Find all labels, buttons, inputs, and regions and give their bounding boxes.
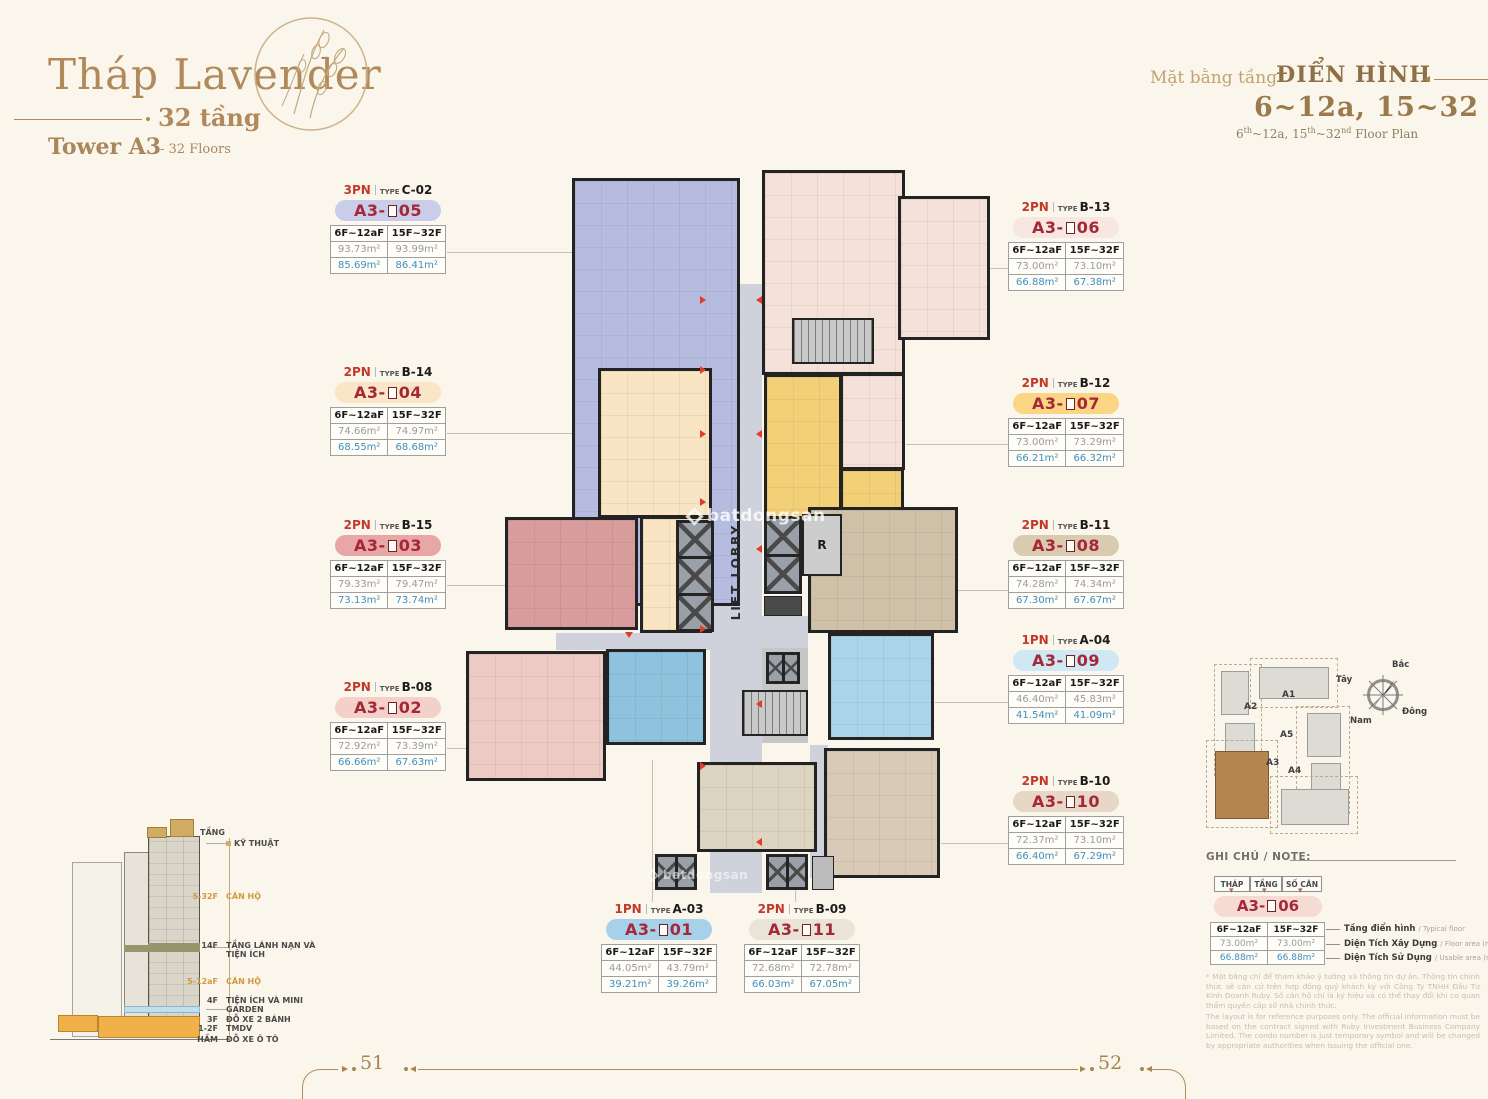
type-word: TYPE — [380, 370, 400, 378]
usable-area-row: 67.30m²67.67m² — [1009, 593, 1124, 609]
site-tower-a1 — [1250, 658, 1338, 708]
unit-area-table: 6F~12aF15F~32F 74.66m²74.97m² 68.55m²68.… — [330, 407, 446, 456]
lavender-logo-icon — [252, 14, 370, 134]
floor-placeholder-box — [802, 924, 811, 936]
usable-area-row: 66.66m²67.63m² — [331, 755, 446, 771]
connector-a302 — [447, 748, 467, 749]
usable-area-row: 39.21m²39.26m² — [602, 977, 717, 993]
col-high-floors: 15F~32F — [1066, 419, 1124, 435]
divider — [375, 682, 376, 692]
unit-card-header: 2PNTYPEB-15 — [330, 518, 446, 532]
legend-arrow-icon: ▾ — [1262, 886, 1267, 896]
type-word: TYPE — [1058, 638, 1078, 646]
site-tower-a4 — [1270, 776, 1358, 834]
tower-floors-vi: 32 tầng — [158, 103, 261, 132]
unit-area-table: 6F~12aF15F~32F 72.92m²73.39m² 66.66m²67.… — [330, 722, 446, 771]
disclaimer-vi: * Mặt bằng chỉ để tham khảo ý tưởng và t… — [1206, 972, 1480, 1010]
unit-area-table: 6F~12aF15F~32F 73.00m²73.29m² 66.21m²66.… — [1008, 418, 1124, 467]
unit-number-badge: A3-02 — [335, 697, 441, 718]
unit-area-table: 6F~12aF15F~32F 44.05m²43.79m² 39.21m²39.… — [601, 944, 717, 993]
section-diagram-row: 14F TẦNG LÁNH NẠN VÀ TIỆN ÍCH — [120, 941, 334, 959]
site-label-a4: A4 — [1288, 766, 1301, 776]
unit-number: 04 — [399, 383, 422, 402]
bedroom-count-label: 2PN — [1022, 200, 1049, 214]
floor-function: TMDV — [226, 1024, 322, 1033]
col-high-floors: 15F~32F — [1066, 561, 1124, 577]
floor-placeholder-box — [1267, 900, 1276, 912]
divider — [375, 367, 376, 377]
floor-placeholder-box — [1066, 398, 1075, 410]
unit-prefix: A3- — [768, 920, 800, 939]
note-underline — [1290, 860, 1456, 861]
type-word: TYPE — [1058, 381, 1078, 389]
podium-annex — [58, 1015, 98, 1032]
unit-card-header: 2PNTYPEB-10 — [1008, 774, 1124, 788]
col-low-floors: 6F~12aF — [1009, 817, 1066, 833]
section-diagram-row: 3F ĐỖ XE 2 BÁNH — [120, 1015, 334, 1024]
floor-function: ĐỖ XE Ô TÔ — [226, 1035, 322, 1044]
col-low-floors: 6F~12aF — [1009, 561, 1066, 577]
door-arrow — [700, 296, 706, 304]
legend-arrow-icon: ▾ — [1229, 886, 1234, 896]
compass-south: Nam — [1350, 716, 1372, 726]
type-word: TYPE — [794, 907, 814, 915]
legend-area-table: 6F~12aF15F~32F 73.00m²73.00m² 66.88m²66.… — [1210, 922, 1325, 965]
unit-card-a311: 2PNTYPEB-09 A3-11 6F~12aF15F~32F 72.68m²… — [744, 902, 860, 993]
bedroom-count-label: 2PN — [344, 518, 371, 532]
legend-row-label: Diện Tích Sử Dụng / Usable area (m²) — [1344, 953, 1488, 963]
elevator-bank-left — [676, 520, 714, 632]
unit-number-badge: A3-06 — [1013, 217, 1119, 238]
unit-number: 06 — [1077, 218, 1100, 237]
unit-number: 08 — [1077, 536, 1100, 555]
divider — [1053, 520, 1054, 530]
unit-number-badge: A3-08 — [1013, 535, 1119, 556]
bedroom-count-label: 2PN — [1022, 774, 1049, 788]
corridor-left-arm — [556, 633, 710, 650]
utility-shaft — [764, 596, 802, 616]
bedroom-count-label: 3PN — [344, 183, 371, 197]
tang-label: TẦNG — [200, 828, 225, 837]
legend-dash — [1326, 958, 1340, 959]
door-arrow — [700, 366, 706, 374]
unit-card-header: 2PNTYPEB-11 — [1008, 518, 1124, 532]
unit-prefix: A3- — [354, 201, 386, 220]
legend-row-label: Tầng điển hình / Typical floor — [1344, 924, 1465, 934]
floor-range: 5-32F — [120, 892, 226, 901]
floor-area-row: 44.05m²43.79m² — [602, 961, 717, 977]
refuse-room-label: R — [817, 538, 826, 552]
unit-number-badge: A3-10 — [1013, 791, 1119, 812]
unit-prefix: A3- — [354, 383, 386, 402]
col-low-floors: 6F~12aF — [745, 945, 802, 961]
door-arrow — [625, 632, 633, 638]
usable-area-row: 73.13m²73.74m² — [331, 593, 446, 609]
door-arrow — [756, 430, 762, 438]
unit-number: 03 — [399, 536, 422, 555]
bedroom-count-label: 2PN — [344, 680, 371, 694]
divider — [646, 904, 647, 914]
floor-range: 3F — [120, 1015, 226, 1024]
unit-number: 10 — [1077, 792, 1100, 811]
unit-prefix: A3- — [625, 920, 657, 939]
floor-placeholder-box — [1066, 540, 1075, 552]
floor-placeholder-box — [388, 387, 397, 399]
unit-prefix: A3- — [354, 698, 386, 717]
type-word: TYPE — [1058, 779, 1078, 787]
table-header-row: 6F~12aF15F~32F — [1009, 817, 1124, 833]
tower-cap-2 — [170, 819, 194, 837]
header-arrow-line — [1434, 79, 1488, 80]
floor-placeholder-box — [659, 924, 668, 936]
table-header-row: 6F~12aF15F~32F — [1009, 419, 1124, 435]
footer-dot — [1090, 1067, 1094, 1071]
unit-area-table: 6F~12aF15F~32F 72.37m²73.10m² 66.40m²67.… — [1008, 816, 1124, 865]
col-high-floors: 15F~32F — [388, 408, 446, 424]
col-high-floors: 15F~32F — [388, 561, 446, 577]
footer-curve-right — [1150, 1069, 1186, 1099]
type-word: TYPE — [1058, 205, 1078, 213]
connector-a306 — [988, 268, 1010, 269]
header-arrow-icon — [1424, 76, 1430, 82]
usable-area-row: 85.69m²86.41m² — [331, 258, 446, 274]
connector-a305 — [447, 252, 573, 253]
type-code: B-10 — [1080, 774, 1111, 788]
compass-east: Đông — [1402, 707, 1427, 717]
door-arrow — [756, 296, 762, 304]
section-diagram-row: 4F TIỆN ÍCH VÀ MINI GARDEN — [120, 996, 334, 1014]
corridor-right-arm — [762, 616, 808, 648]
unit-prefix: A3- — [1032, 651, 1064, 670]
type-code: B-11 — [1080, 518, 1111, 532]
disclaimer-en: The layout is for reference purposes onl… — [1206, 1012, 1480, 1050]
footer-line — [418, 1069, 1078, 1070]
unit-number: 01 — [670, 920, 693, 939]
unit-area-table: 6F~12aF15F~32F 79.33m²79.47m² 73.13m²73.… — [330, 560, 446, 609]
table-header-row: 6F~12aF15F~32F — [331, 226, 446, 242]
legend-dash — [1326, 929, 1340, 930]
type-code: C-02 — [402, 183, 433, 197]
site-label-a1: A1 — [1282, 690, 1295, 700]
door-arrow — [700, 430, 706, 438]
usable-area-row: 68.55m²68.68m² — [331, 440, 446, 456]
unit-plan-a03 — [606, 649, 706, 745]
unit-number-badge: A3-09 — [1013, 650, 1119, 671]
unit-number-badge: A3-05 — [335, 200, 441, 221]
type-word: TYPE — [380, 188, 400, 196]
connector-a309 — [935, 702, 1010, 703]
unit-card-a307: 2PNTYPEB-12 A3-07 6F~12aF15F~32F 73.00m²… — [1008, 376, 1124, 467]
footer-arrow — [410, 1066, 416, 1072]
unit-number: 07 — [1077, 394, 1100, 413]
unit-plan-b13-leg — [840, 373, 905, 470]
brochure-page: Tháp Lavender 32 tầng Tower A3 - 32 Floo… — [0, 0, 1488, 1099]
floor-range: 14F — [120, 941, 226, 950]
col-low-floors: 6F~12aF — [331, 723, 388, 739]
floor-placeholder-box — [388, 205, 397, 217]
page-number-right: 52 — [1098, 1052, 1122, 1074]
door-arrow — [756, 545, 762, 553]
type-word: TYPE — [651, 907, 671, 915]
door-arrow — [700, 762, 706, 770]
connector-a303 — [447, 585, 506, 586]
unit-plan-b08 — [466, 651, 606, 781]
divider — [1053, 202, 1054, 212]
bedroom-count-label: 2PN — [1022, 518, 1049, 532]
unit-card-a301: 1PNTYPEA-03 A3-01 6F~12aF15F~32F 44.05m²… — [601, 902, 717, 993]
floor-area-row: 74.28m²74.34m² — [1009, 577, 1124, 593]
unit-prefix: A3- — [354, 536, 386, 555]
unit-card-a302: 2PNTYPEB-08 A3-02 6F~12aF15F~32F 72.92m²… — [330, 680, 446, 771]
unit-number-badge: A3-07 — [1013, 393, 1119, 414]
note-title: GHI CHÚ / NOTE: — [1206, 851, 1311, 863]
floor-function: CĂN HỘ — [226, 977, 322, 986]
connector-a310 — [941, 843, 1010, 844]
usable-area-row: 66.03m²67.05m² — [745, 977, 860, 993]
unit-card-a305: 3PNTYPEC-02 A3-05 6F~12aF15F~32F 93.73m²… — [330, 183, 446, 274]
usable-area-row: 41.54m²41.09m² — [1009, 708, 1124, 724]
floor-placeholder-box — [388, 540, 397, 552]
header-rule — [14, 119, 142, 120]
unit-plan-a04 — [828, 633, 934, 740]
tower-floors-en: - 32 Floors — [160, 142, 231, 157]
floor-area-row: 72.92m²73.39m² — [331, 739, 446, 755]
footer-arrow — [342, 1066, 348, 1072]
col-low-floors: 6F~12aF — [1009, 419, 1066, 435]
col-high-floors: 15F~32F — [1066, 676, 1124, 692]
site-label-a5: A5 — [1280, 730, 1293, 740]
legend-unit-badge: A3-06 — [1214, 896, 1322, 917]
unit-card-a308: 2PNTYPEB-11 A3-08 6F~12aF15F~32F 74.28m²… — [1008, 518, 1124, 609]
usable-area-row: 66.21m²66.32m² — [1009, 451, 1124, 467]
divider — [1053, 776, 1054, 786]
type-code: B-15 — [402, 518, 433, 532]
floor-function: KỸ THUẬT — [226, 839, 322, 848]
floor-area-row: 72.37m²73.10m² — [1009, 833, 1124, 849]
connector-a308 — [957, 590, 1010, 591]
floor-placeholder-box — [1066, 796, 1075, 808]
unit-number: 05 — [399, 201, 422, 220]
unit-card-header: 1PNTYPEA-03 — [601, 902, 717, 916]
floor-range: 4F — [120, 996, 226, 1005]
unit-card-header: 2PNTYPEB-08 — [330, 680, 446, 694]
plan-subtitle-en: 6th~12a, 15th~32nd Floor Plan — [1236, 126, 1418, 141]
unit-card-header: 1PNTYPEA-04 — [1008, 633, 1124, 647]
section-diagram-row: 5-32F CĂN HỘ — [120, 892, 334, 901]
door-arrow — [756, 700, 762, 708]
col-low-floors: 6F~12aF — [1009, 676, 1066, 692]
divider — [1053, 635, 1054, 645]
unit-number: 02 — [399, 698, 422, 717]
type-code: B-08 — [402, 680, 433, 694]
type-code: B-13 — [1080, 200, 1111, 214]
unit-number-badge: A3-01 — [606, 919, 712, 940]
table-header-row: 6F~12aF15F~32F — [1009, 561, 1124, 577]
unit-number: 11 — [813, 920, 836, 939]
col-high-floors: 15F~32F — [659, 945, 717, 961]
bedroom-count-label: 1PN — [615, 902, 642, 916]
unit-number: 09 — [1077, 651, 1100, 670]
table-header-row: 6F~12aF15F~32F — [745, 945, 860, 961]
unit-card-header: 3PNTYPEC-02 — [330, 183, 446, 197]
unit-card-a303: 2PNTYPEB-15 A3-03 6F~12aF15F~32F 79.33m²… — [330, 518, 446, 609]
page-number-left: 51 — [360, 1052, 384, 1074]
col-low-floors: 6F~12aF — [331, 226, 388, 242]
unit-area-table: 6F~12aF15F~32F 93.73m²93.99m² 85.69m²86.… — [330, 225, 446, 274]
door-arrow — [756, 838, 762, 846]
type-code: B-09 — [816, 902, 847, 916]
compass-north: Bắc — [1392, 660, 1409, 670]
unit-card-header: 2PNTYPEB-09 — [744, 902, 860, 916]
table-header-row: 6F~12aF15F~32F — [602, 945, 717, 961]
unit-plan-b13-wing — [898, 196, 990, 340]
unit-card-header: 2PNTYPEB-12 — [1008, 376, 1124, 390]
table-header-row: 6F~12aF15F~32F — [331, 408, 446, 424]
unit-plan-b15 — [505, 517, 638, 630]
floor-function: TIỆN ÍCH VÀ MINI GARDEN — [226, 996, 322, 1014]
floor-placeholder-box — [1066, 222, 1075, 234]
unit-number-badge: A3-11 — [749, 919, 855, 940]
unit-card-a306: 2PNTYPEB-13 A3-06 6F~12aF15F~32F 73.00m²… — [1008, 200, 1124, 291]
floor-range: 1-2F — [120, 1024, 226, 1033]
section-diagram-row: HẦM ĐỖ XE Ô TÔ — [120, 1035, 334, 1044]
type-word: TYPE — [380, 685, 400, 693]
legend-arrow-icon: ▾ — [1298, 886, 1303, 896]
unit-area-table: 6F~12aF15F~32F 46.40m²45.83m² 41.54m²41.… — [1008, 675, 1124, 724]
legend-dash — [1326, 944, 1340, 945]
floor-function: ĐỖ XE 2 BÁNH — [226, 1015, 322, 1024]
unit-prefix: A3- — [1032, 536, 1064, 555]
divider — [375, 520, 376, 530]
footer-arrow — [1080, 1066, 1086, 1072]
floor-area-row: 79.33m²79.47m² — [331, 577, 446, 593]
unit-plan-b14 — [598, 368, 712, 518]
watermark-logo-icon — [646, 869, 659, 882]
tower-back — [72, 862, 122, 1037]
floor-range: HẦM — [120, 1035, 226, 1044]
shaft-small — [766, 652, 800, 684]
unit-prefix: A3- — [1032, 792, 1064, 811]
site-tower-a3 — [1206, 740, 1278, 828]
floor-area-row: 72.68m²72.78m² — [745, 961, 860, 977]
site-label-a3: A3 — [1266, 758, 1279, 768]
section-diagram-row: 5-12aF CĂN HỘ — [120, 977, 334, 986]
floor-area-row: 74.66m²74.97m² — [331, 424, 446, 440]
door-arrow — [700, 498, 706, 506]
col-low-floors: 6F~12aF — [331, 408, 388, 424]
bedroom-count-label: 2PN — [1022, 376, 1049, 390]
col-high-floors: 15F~32F — [1066, 243, 1124, 259]
floor-range-title: 6~12a, 15~32 — [1254, 92, 1479, 123]
floor-placeholder-box — [1066, 655, 1075, 667]
header-rule-dot — [146, 117, 150, 121]
floor-area-row: 46.40m²45.83m² — [1009, 692, 1124, 708]
col-high-floors: 15F~32F — [802, 945, 860, 961]
type-code: A-04 — [1079, 633, 1110, 647]
type-code: B-12 — [1080, 376, 1111, 390]
floor-placeholder-box — [388, 702, 397, 714]
tower-cap-1 — [147, 827, 167, 838]
compass-west: Tây — [1336, 675, 1352, 685]
footer-dot — [1140, 1067, 1144, 1071]
col-high-floors: 15F~32F — [1066, 817, 1124, 833]
unit-prefix: A3- — [1032, 218, 1064, 237]
plan-title-vi: ĐIỂN HÌNH — [1276, 62, 1431, 88]
elevator-bottom-right — [766, 854, 808, 890]
unit-prefix: A3- — [1032, 394, 1064, 413]
unit-number-badge: A3-04 — [335, 382, 441, 403]
table-header-row: 6F~12aF15F~32F — [331, 561, 446, 577]
bedroom-count-label: 1PN — [1022, 633, 1049, 647]
divider — [789, 904, 790, 914]
connector-a307 — [906, 444, 1010, 445]
col-low-floors: 6F~12aF — [602, 945, 659, 961]
footer-dot — [352, 1067, 356, 1071]
tower-name: Tower A3 — [48, 134, 161, 160]
divider — [1053, 378, 1054, 388]
col-high-floors: 15F~32F — [388, 723, 446, 739]
section-diagram-row: KỸ THUẬT — [120, 839, 334, 848]
type-code: A-03 — [672, 902, 703, 916]
footer-curve-left — [302, 1069, 338, 1099]
col-low-floors: 6F~12aF — [1009, 243, 1066, 259]
unit-card-header: 2PNTYPEB-14 — [330, 365, 446, 379]
usable-area-row: 66.40m²67.29m² — [1009, 849, 1124, 865]
staircase-mid — [742, 690, 808, 736]
col-high-floors: 15F~32F — [388, 226, 446, 242]
type-code: B-14 — [402, 365, 433, 379]
table-header-row: 6F~12aF15F~32F — [331, 723, 446, 739]
bedroom-count-label: 2PN — [758, 902, 785, 916]
bedroom-count-label: 2PN — [344, 365, 371, 379]
unit-area-table: 6F~12aF15F~32F 73.00m²73.10m² 66.88m²67.… — [1008, 242, 1124, 291]
unit-card-header: 2PNTYPEB-13 — [1008, 200, 1124, 214]
watermark: batdongsan — [688, 506, 826, 526]
unit-number-badge: A3-03 — [335, 535, 441, 556]
plan-subtitle-vi: Mặt bằng tầng — [1150, 68, 1277, 88]
elevator-bank-right — [764, 516, 802, 594]
staircase-top — [792, 318, 874, 364]
unit-plan-b10 — [824, 748, 940, 878]
divider — [375, 185, 376, 195]
utility-bottom — [812, 856, 834, 890]
legend-row-label: Diện Tích Xây Dựng / Floor area (m²) — [1344, 939, 1488, 949]
unit-card-a304: 2PNTYPEB-14 A3-04 6F~12aF15F~32F 74.66m²… — [330, 365, 446, 456]
unit-card-a309: 1PNTYPEA-04 A3-09 6F~12aF15F~32F 46.40m²… — [1008, 633, 1124, 724]
type-word: TYPE — [380, 523, 400, 531]
floor-area-row: 73.00m²73.29m² — [1009, 435, 1124, 451]
floor-area-row: 93.73m²93.99m² — [331, 242, 446, 258]
footer-dot — [404, 1067, 408, 1071]
site-label-a2: A2 — [1244, 702, 1257, 712]
col-low-floors: 6F~12aF — [331, 561, 388, 577]
unit-card-a310: 2PNTYPEB-10 A3-10 6F~12aF15F~32F 72.37m²… — [1008, 774, 1124, 865]
unit-area-table: 6F~12aF15F~32F 72.68m²72.78m² 66.03m²67.… — [744, 944, 860, 993]
type-word: TYPE — [1058, 523, 1078, 531]
section-diagram-row: 1-2F TMDV — [120, 1024, 334, 1033]
floor-range: 5-12aF — [120, 977, 226, 986]
unit-area-table: 6F~12aF15F~32F 74.28m²74.34m² 67.30m²67.… — [1008, 560, 1124, 609]
watermark: batdongsan — [648, 868, 748, 882]
watermark-logo-icon — [685, 507, 703, 525]
floor-area-row: 73.00m²73.10m² — [1009, 259, 1124, 275]
usable-area-row: 66.88m²67.38m² — [1009, 275, 1124, 291]
floor-function: TẦNG LÁNH NẠN VÀ TIỆN ÍCH — [226, 941, 322, 959]
floor-function: CĂN HỘ — [226, 892, 322, 901]
door-arrow — [700, 625, 706, 633]
table-header-row: 6F~12aF15F~32F — [1009, 243, 1124, 259]
table-header-row: 6F~12aF15F~32F — [1009, 676, 1124, 692]
